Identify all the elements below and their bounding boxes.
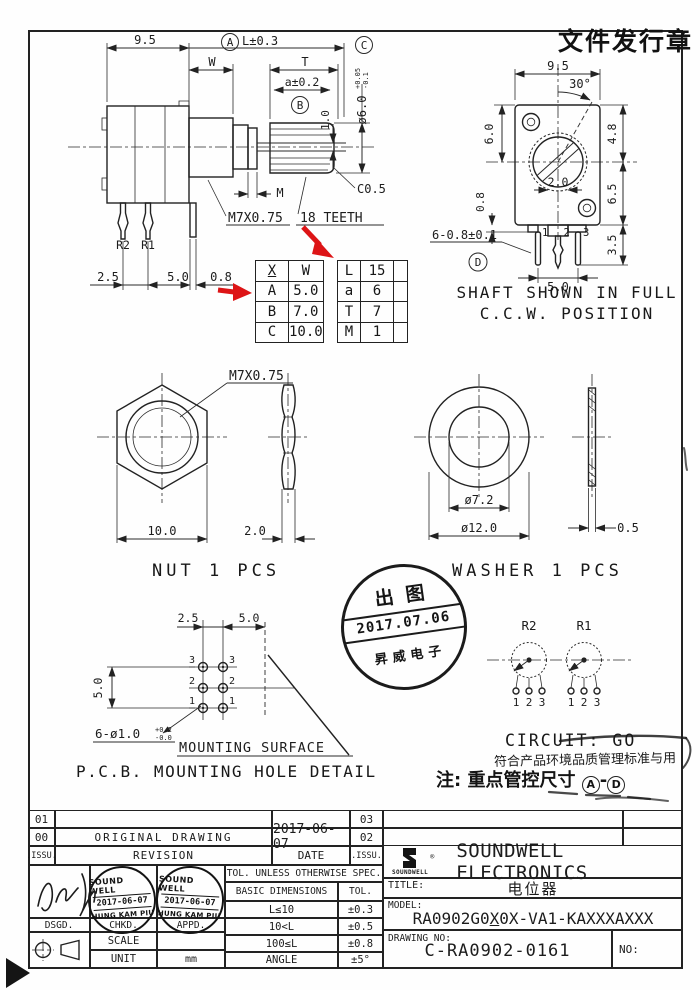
drawing-line-art: R2 R1 9.5 A L±0.3 W T a±0.2 B: [0, 0, 700, 990]
release-stamp-line3: 昇威电子: [368, 639, 447, 669]
circuit-r2-label: R2: [521, 618, 536, 633]
size-row-val: 5.0: [289, 281, 324, 302]
terminal-label: 3: [539, 696, 546, 709]
washer-drawing: ø7.2 ø12.0 0.5: [414, 374, 639, 540]
note-key-dims: 注: 重点管控尺寸 A-D: [436, 766, 625, 794]
param-row-key: L: [338, 261, 361, 282]
terminal-label: 2: [526, 696, 533, 709]
param-row-key: M: [338, 322, 361, 343]
datum-d-label: D: [475, 256, 482, 269]
dim-t: T: [301, 55, 308, 69]
fv-dim-0p8: 0.8: [474, 192, 487, 212]
dim-5p0: 5.0: [167, 270, 189, 284]
size-row-val: 10.0: [289, 322, 324, 343]
size-table-header-x: X: [256, 261, 289, 282]
param-row-val: 6: [361, 281, 394, 302]
terminal-label: 3: [594, 696, 601, 709]
terminal-label: 1: [513, 696, 520, 709]
document-issue-stamp: 文件发行章: [558, 22, 693, 58]
datum-c-label: C: [361, 39, 368, 52]
signature: [30, 864, 100, 924]
dim-l: L±0.3: [242, 34, 278, 48]
param-row-empty: [394, 281, 408, 302]
note-dash: -: [600, 770, 607, 791]
shaft-caption-line1: SHAFT SHOWN IN FULL: [443, 283, 691, 302]
fold-mark: [6, 958, 30, 988]
shaft-caption-line2: C.C.W. POSITION: [443, 304, 691, 323]
pcb-hole-label: 2: [229, 676, 235, 687]
param-row-empty: [394, 261, 408, 282]
size-row-val: 7.0: [289, 302, 324, 323]
terminal-label: 2: [581, 696, 588, 709]
dim-dia6-tol-up: +0.05: [354, 68, 362, 89]
stamp-company: SOUND WELL: [158, 874, 223, 895]
drawing-sheet: 文件发行章: [0, 0, 700, 990]
nut-dim-thick: 2.0: [244, 524, 266, 538]
size-table-header-w: W: [289, 261, 324, 282]
circuit-caption: CIRCUIT: GO: [505, 731, 636, 750]
dim-2p5: 2.5: [97, 270, 119, 284]
dim-6p0: 6.0: [482, 124, 496, 145]
datum-d-ref: D: [607, 776, 625, 794]
dim-9p5: 9.5: [134, 33, 156, 47]
fv-pin2-label: 2: [564, 227, 570, 239]
washer-dia-in: ø7.2: [465, 493, 494, 507]
dim-dia6-tol-dn: -0.1: [362, 72, 370, 89]
dim-3p5: 3.5: [605, 235, 619, 256]
shaft-param-table: L 15 a 6 T 7 M 1: [337, 260, 408, 343]
pcb-caption: P.C.B. MOUNTING HOLE DETAIL: [76, 762, 377, 781]
circuit-drawing: R2 R1 1 2 3: [487, 618, 633, 709]
pcb-hole-label: 1: [229, 696, 235, 707]
dim-0p8: 0.8: [210, 270, 232, 284]
gang-r1: 1 2 3: [567, 643, 602, 710]
shaft-size-table: X W A 5.0 B 7.0 C 10.0: [255, 260, 324, 343]
pin-size-note: 6-0.8±0.1: [432, 228, 497, 242]
pcb-detail-drawing: 2.5 5.0 3 3 2 2 1 1 5.0: [91, 611, 353, 756]
size-row-key: B: [256, 302, 289, 323]
dim-dia6: ø6.0: [355, 96, 369, 125]
dim-w: W: [208, 55, 216, 69]
datum-b-label: B: [297, 99, 304, 112]
washer-caption: WASHER 1 PCS: [452, 561, 623, 581]
dim-m: M: [276, 186, 283, 200]
param-row-val: 1: [361, 322, 394, 343]
front-view-drawing: 30° 9.5 4.8 6.5 3.5 6.0 0.8: [430, 59, 637, 294]
fv-pin1-label: 1: [542, 227, 548, 239]
nut-drawing: M7X0.75 10.0 2.0: [97, 369, 315, 543]
param-row-val: 7: [361, 302, 394, 323]
fv-pin3-label: 3: [583, 227, 589, 239]
param-row-empty: [394, 322, 408, 343]
side-view-drawing: R2 R1 9.5 A L±0.3 W T a±0.2 B: [68, 33, 386, 290]
stamp-name: HUNG KAM PIU: [158, 909, 221, 920]
gang-r2: 1 2 3: [512, 643, 547, 710]
pcb-dim-2p5: 2.5: [178, 611, 199, 625]
param-row-key: T: [338, 302, 361, 323]
terminal-label: 1: [568, 696, 575, 709]
stamp-name: HUNG KAM PIU: [91, 909, 154, 921]
nut-caption: NUT 1 PCS: [152, 561, 280, 581]
pcb-hole-label: 3: [229, 655, 235, 666]
nut-dim-width: 10.0: [148, 524, 177, 538]
dim-slot-width: 1.0: [319, 110, 332, 130]
pcb-hole-note: 6-ø1.0: [95, 726, 140, 741]
fv-dim-9p5: 9.5: [547, 59, 569, 73]
pcb-dim-5p0-top: 5.0: [239, 611, 260, 625]
pcb-hole-label: 2: [189, 676, 195, 687]
washer-dia-out: ø12.0: [461, 521, 497, 535]
nut-thread-callout: M7X0.75: [229, 369, 284, 384]
dim-2p0: 2.0: [548, 175, 569, 189]
pcb-hole-tol-up: +0.2: [155, 726, 172, 734]
teeth-callout: 18 TEETH: [300, 211, 363, 226]
pcb-hole-tol-dn: -0.0: [155, 734, 172, 742]
param-row-empty: [394, 302, 408, 323]
datum-a-ref: A: [582, 776, 600, 794]
size-row-key: A: [256, 281, 289, 302]
datum-a-label: A: [227, 36, 234, 49]
chamfer-callout: C0.5: [357, 182, 386, 196]
dim-angle-30: 30°: [569, 77, 591, 91]
param-row-key: a: [338, 281, 361, 302]
param-row-val: 15: [361, 261, 394, 282]
pcb-dim-5p0-left: 5.0: [91, 678, 105, 699]
size-row-key: C: [256, 322, 289, 343]
circuit-r1-label: R1: [576, 618, 591, 633]
note-key-dims-text: 注: 重点管控尺寸: [436, 770, 575, 791]
dim-a: a±0.2: [285, 75, 320, 89]
mounting-surface-label: MOUNTING SURFACE: [179, 740, 325, 756]
dim-4p8: 4.8: [605, 124, 619, 145]
washer-dim-thick: 0.5: [617, 521, 639, 535]
dim-6p5: 6.5: [605, 184, 619, 205]
thread-callout: M7X0.75: [228, 211, 283, 226]
pcb-hole-label: 3: [189, 655, 195, 666]
pcb-hole-label: 1: [189, 696, 195, 707]
